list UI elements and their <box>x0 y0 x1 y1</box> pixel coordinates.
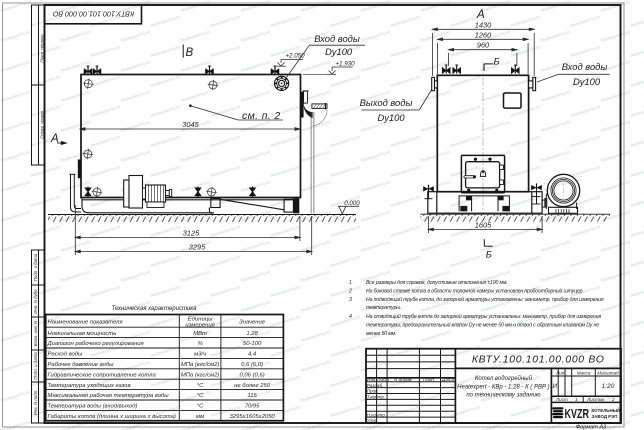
svg-text:Выход воды: Выход воды <box>360 97 413 108</box>
svg-text:На отводящий трубе котла до за: На отводящий трубе котла до запорной арм… <box>366 313 601 320</box>
svg-text:Масштаб: Масштаб <box>597 370 619 375</box>
svg-text:Dy100: Dy100 <box>573 76 601 87</box>
svg-text:°С: °С <box>197 393 204 399</box>
svg-text:70/95: 70/95 <box>245 404 260 410</box>
svg-text:2: 2 <box>611 397 615 402</box>
svg-text:1,28: 1,28 <box>246 331 258 337</box>
svg-text:Лит.: Лит. <box>555 370 567 375</box>
svg-text:температуры, предохранительный: температуры, предохранительный клапан Dу… <box>366 322 599 329</box>
svg-text:Листов: Листов <box>586 397 604 402</box>
svg-text:Техническая характеристика: Техническая характеристика <box>112 306 198 312</box>
svg-text:KVZR: KVZR <box>565 407 590 421</box>
svg-text:Heatexpert - КВр - 1,28 - К (: Heatexpert - КВр - 1,28 - К ( РВР ) <box>457 385 549 391</box>
svg-text:3045: 3045 <box>182 120 199 129</box>
svg-text:N докум.: N докум. <box>394 377 413 382</box>
svg-text:Номинальная мощность: Номинальная мощность <box>48 331 117 337</box>
svg-text:Все размеры для справок, допус: Все размеры для справок, допустимые откл… <box>366 280 508 286</box>
svg-text:м3/ч: м3/ч <box>194 352 206 358</box>
svg-text:3125: 3125 <box>183 228 200 237</box>
svg-text:МПа (кгс/см2): МПа (кгс/см2) <box>181 362 220 368</box>
svg-text:Пров.: Пров. <box>367 389 379 394</box>
svg-text:1:20: 1:20 <box>602 383 615 390</box>
svg-text:+1.930: +1.930 <box>335 60 355 67</box>
svg-text:Вход воды: Вход воды <box>314 33 360 44</box>
svg-text:На боковой стенке котла в обла: На боковой стенке котла в области топочн… <box>366 288 583 295</box>
svg-text:Лист: Лист <box>376 377 389 382</box>
svg-text:Б: Б <box>486 250 492 261</box>
svg-text:1: 1 <box>349 280 352 286</box>
svg-text:3: 3 <box>349 297 352 303</box>
svg-text:Масса: Масса <box>577 370 591 375</box>
svg-text:Формат А3: Формат А3 <box>576 424 607 430</box>
svg-text:Максимальная рабочая температу: Максимальная рабочая температура воды <box>48 393 170 399</box>
svg-text:Инв. N дубл.: Инв. N дубл. <box>33 288 38 313</box>
svg-text:Рабочее давление воды: Рабочее давление воды <box>48 362 115 368</box>
svg-text:Гидравлическое сопротивление к: Гидравлическое сопротивление котла <box>48 372 157 378</box>
svg-text:Подп.: Подп. <box>423 377 435 382</box>
svg-text:Вход воды: Вход воды <box>562 61 608 72</box>
svg-text:Утв.: Утв. <box>367 418 377 423</box>
svg-text:4: 4 <box>349 314 352 320</box>
svg-text:менее 50 мм.: менее 50 мм. <box>366 331 396 337</box>
svg-text:Изм.: Изм. <box>367 377 377 382</box>
svg-text:Перв. примен.: Перв. примен. <box>40 33 45 62</box>
svg-text:4,4: 4,4 <box>248 352 257 358</box>
svg-text:Дата: Дата <box>441 377 455 382</box>
svg-text:Взам. инв. N: Взам. инв. N <box>33 320 38 346</box>
svg-text:1605: 1605 <box>475 220 492 229</box>
svg-text:МПа (кгс/см2): МПа (кгс/см2) <box>181 372 220 378</box>
svg-text:по техническому заданию: по техническому заданию <box>466 393 541 399</box>
svg-text:Dy100: Dy100 <box>377 112 405 123</box>
svg-text:Б: Б <box>494 57 500 68</box>
svg-text:0.000: 0.000 <box>344 200 360 207</box>
svg-text:2: 2 <box>348 289 352 295</box>
svg-text:не более 250: не более 250 <box>234 383 271 389</box>
svg-text:Т.контр.: Т.контр. <box>367 395 386 400</box>
svg-text:Значение: Значение <box>239 320 266 326</box>
svg-text:%: % <box>197 341 202 347</box>
svg-text:3295х1605х2050: 3295х1605х2050 <box>229 414 275 420</box>
svg-text:°С: °С <box>197 404 204 410</box>
svg-text:50-100: 50-100 <box>243 341 262 347</box>
svg-text:см. п. 2: см. п. 2 <box>242 111 281 122</box>
svg-text:Температура уходящих газов: Температура уходящих газов <box>48 383 131 389</box>
svg-text:А: А <box>476 9 485 21</box>
svg-text:Котел водогрейный: Котел водогрейный <box>475 375 533 382</box>
svg-text:Разраб.: Разраб. <box>367 383 384 388</box>
svg-text:Расход воды: Расход воды <box>48 352 84 358</box>
svg-text:°С: °С <box>197 383 204 389</box>
svg-text:КОТЕЛЬНЫЙ: КОТЕЛЬНЫЙ <box>592 408 621 413</box>
svg-text:И: И <box>552 383 557 390</box>
svg-text:+2.050: +2.050 <box>285 53 305 60</box>
svg-text:Наименование показателя: Наименование показателя <box>48 320 124 326</box>
svg-text:На подводящий трубе котла, до: На подводящий трубе котла, до запорной а… <box>366 296 604 303</box>
svg-text:0,06 (0,6): 0,06 (0,6) <box>239 372 264 378</box>
svg-text:0,6 (6,0): 0,6 (6,0) <box>241 362 263 368</box>
svg-text:3295: 3295 <box>189 243 206 252</box>
svg-text:1430: 1430 <box>475 20 492 29</box>
svg-text:Подп. и дата: Подп. и дата <box>33 352 38 380</box>
svg-text:Подп. и дата: Подп. и дата <box>33 253 38 281</box>
svg-text:Габариты котла (длинна х ширин: Габариты котла (длинна х ширина х высота… <box>48 414 176 420</box>
svg-text:МВт: МВт <box>193 331 207 337</box>
svg-text:960: 960 <box>477 41 490 50</box>
svg-text:Лист: Лист <box>555 397 568 402</box>
svg-text:Инв. N подл.: Инв. N подл. <box>33 390 38 416</box>
svg-text:Н.контр.: Н.контр. <box>367 412 386 417</box>
svg-text:КВТУ.100.101.00.000 ВО: КВТУ.100.101.00.000 ВО <box>53 10 135 19</box>
svg-text:Диапазон рабочего регулировани: Диапазон рабочего регулирования <box>47 341 145 347</box>
svg-text:мм: мм <box>196 414 204 420</box>
svg-text:В: В <box>186 47 194 59</box>
svg-text:115: 115 <box>247 393 257 399</box>
svg-text:Справ. номер: Справ. номер <box>40 110 45 139</box>
svg-text:1: 1 <box>575 397 578 402</box>
svg-text:Температура воды (вход/выход): Температура воды (вход/выход) <box>48 404 138 410</box>
svg-text:температуры.: температуры. <box>366 305 401 311</box>
svg-text:измерения: измерения <box>185 322 215 328</box>
svg-text:КВТУ.100.101.00.000 ВО: КВТУ.100.101.00.000 ВО <box>472 355 605 366</box>
svg-text:1260: 1260 <box>475 30 492 39</box>
svg-text:Dy100: Dy100 <box>325 46 353 57</box>
svg-text:ЗАВОД РЭП: ЗАВОД РЭП <box>592 414 618 419</box>
